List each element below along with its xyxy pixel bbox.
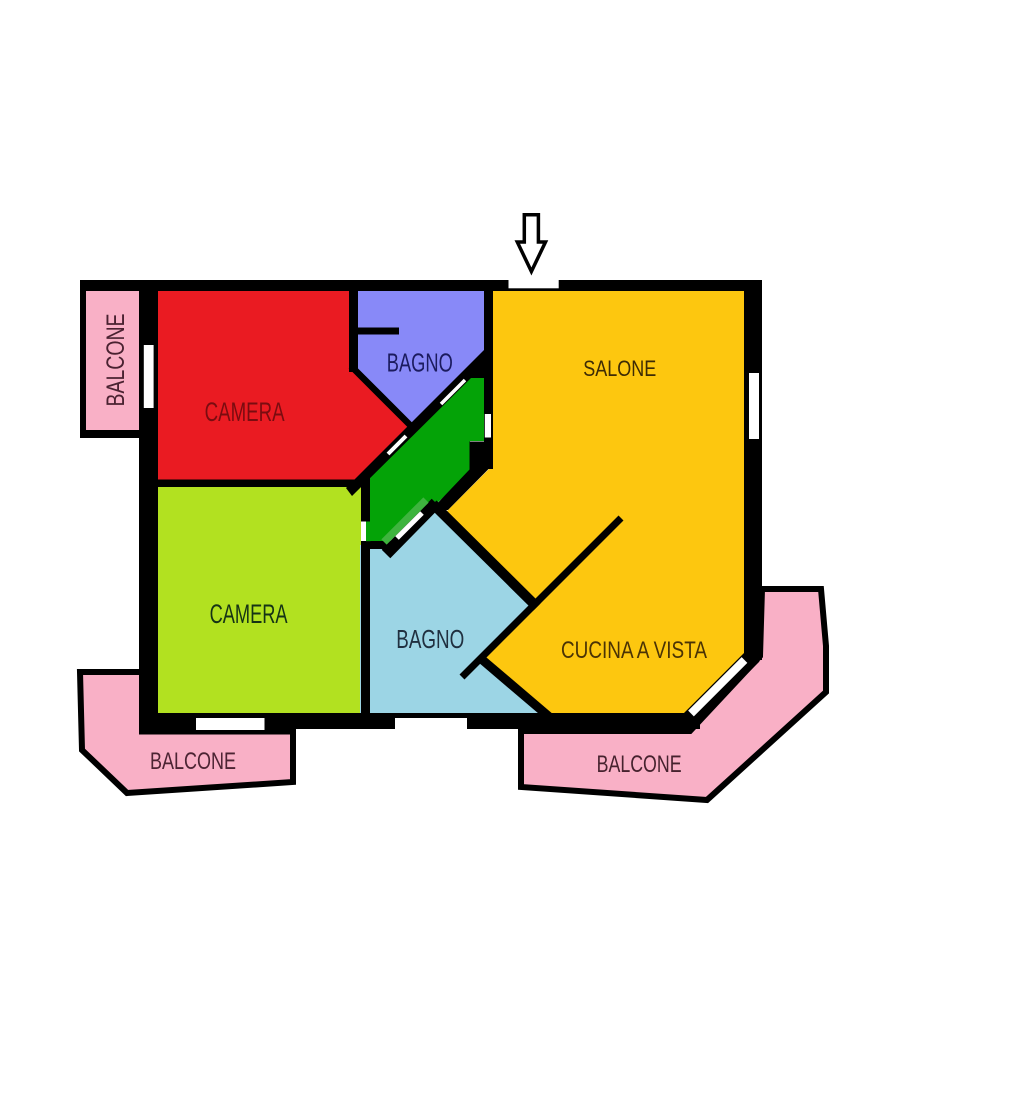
svg-text:BALCONE: BALCONE — [597, 751, 682, 778]
svg-text:SALONE: SALONE — [583, 356, 656, 381]
svg-text:BALCONE: BALCONE — [150, 748, 236, 775]
svg-text:CUCINA A VISTA: CUCINA A VISTA — [561, 637, 707, 664]
svg-text:CAMERA: CAMERA — [210, 599, 288, 629]
svg-text:BAGNO: BAGNO — [396, 624, 464, 654]
svg-text:CAMERA: CAMERA — [205, 397, 285, 427]
svg-text:BALCONE: BALCONE — [102, 314, 130, 407]
svg-text:BAGNO: BAGNO — [387, 350, 453, 378]
